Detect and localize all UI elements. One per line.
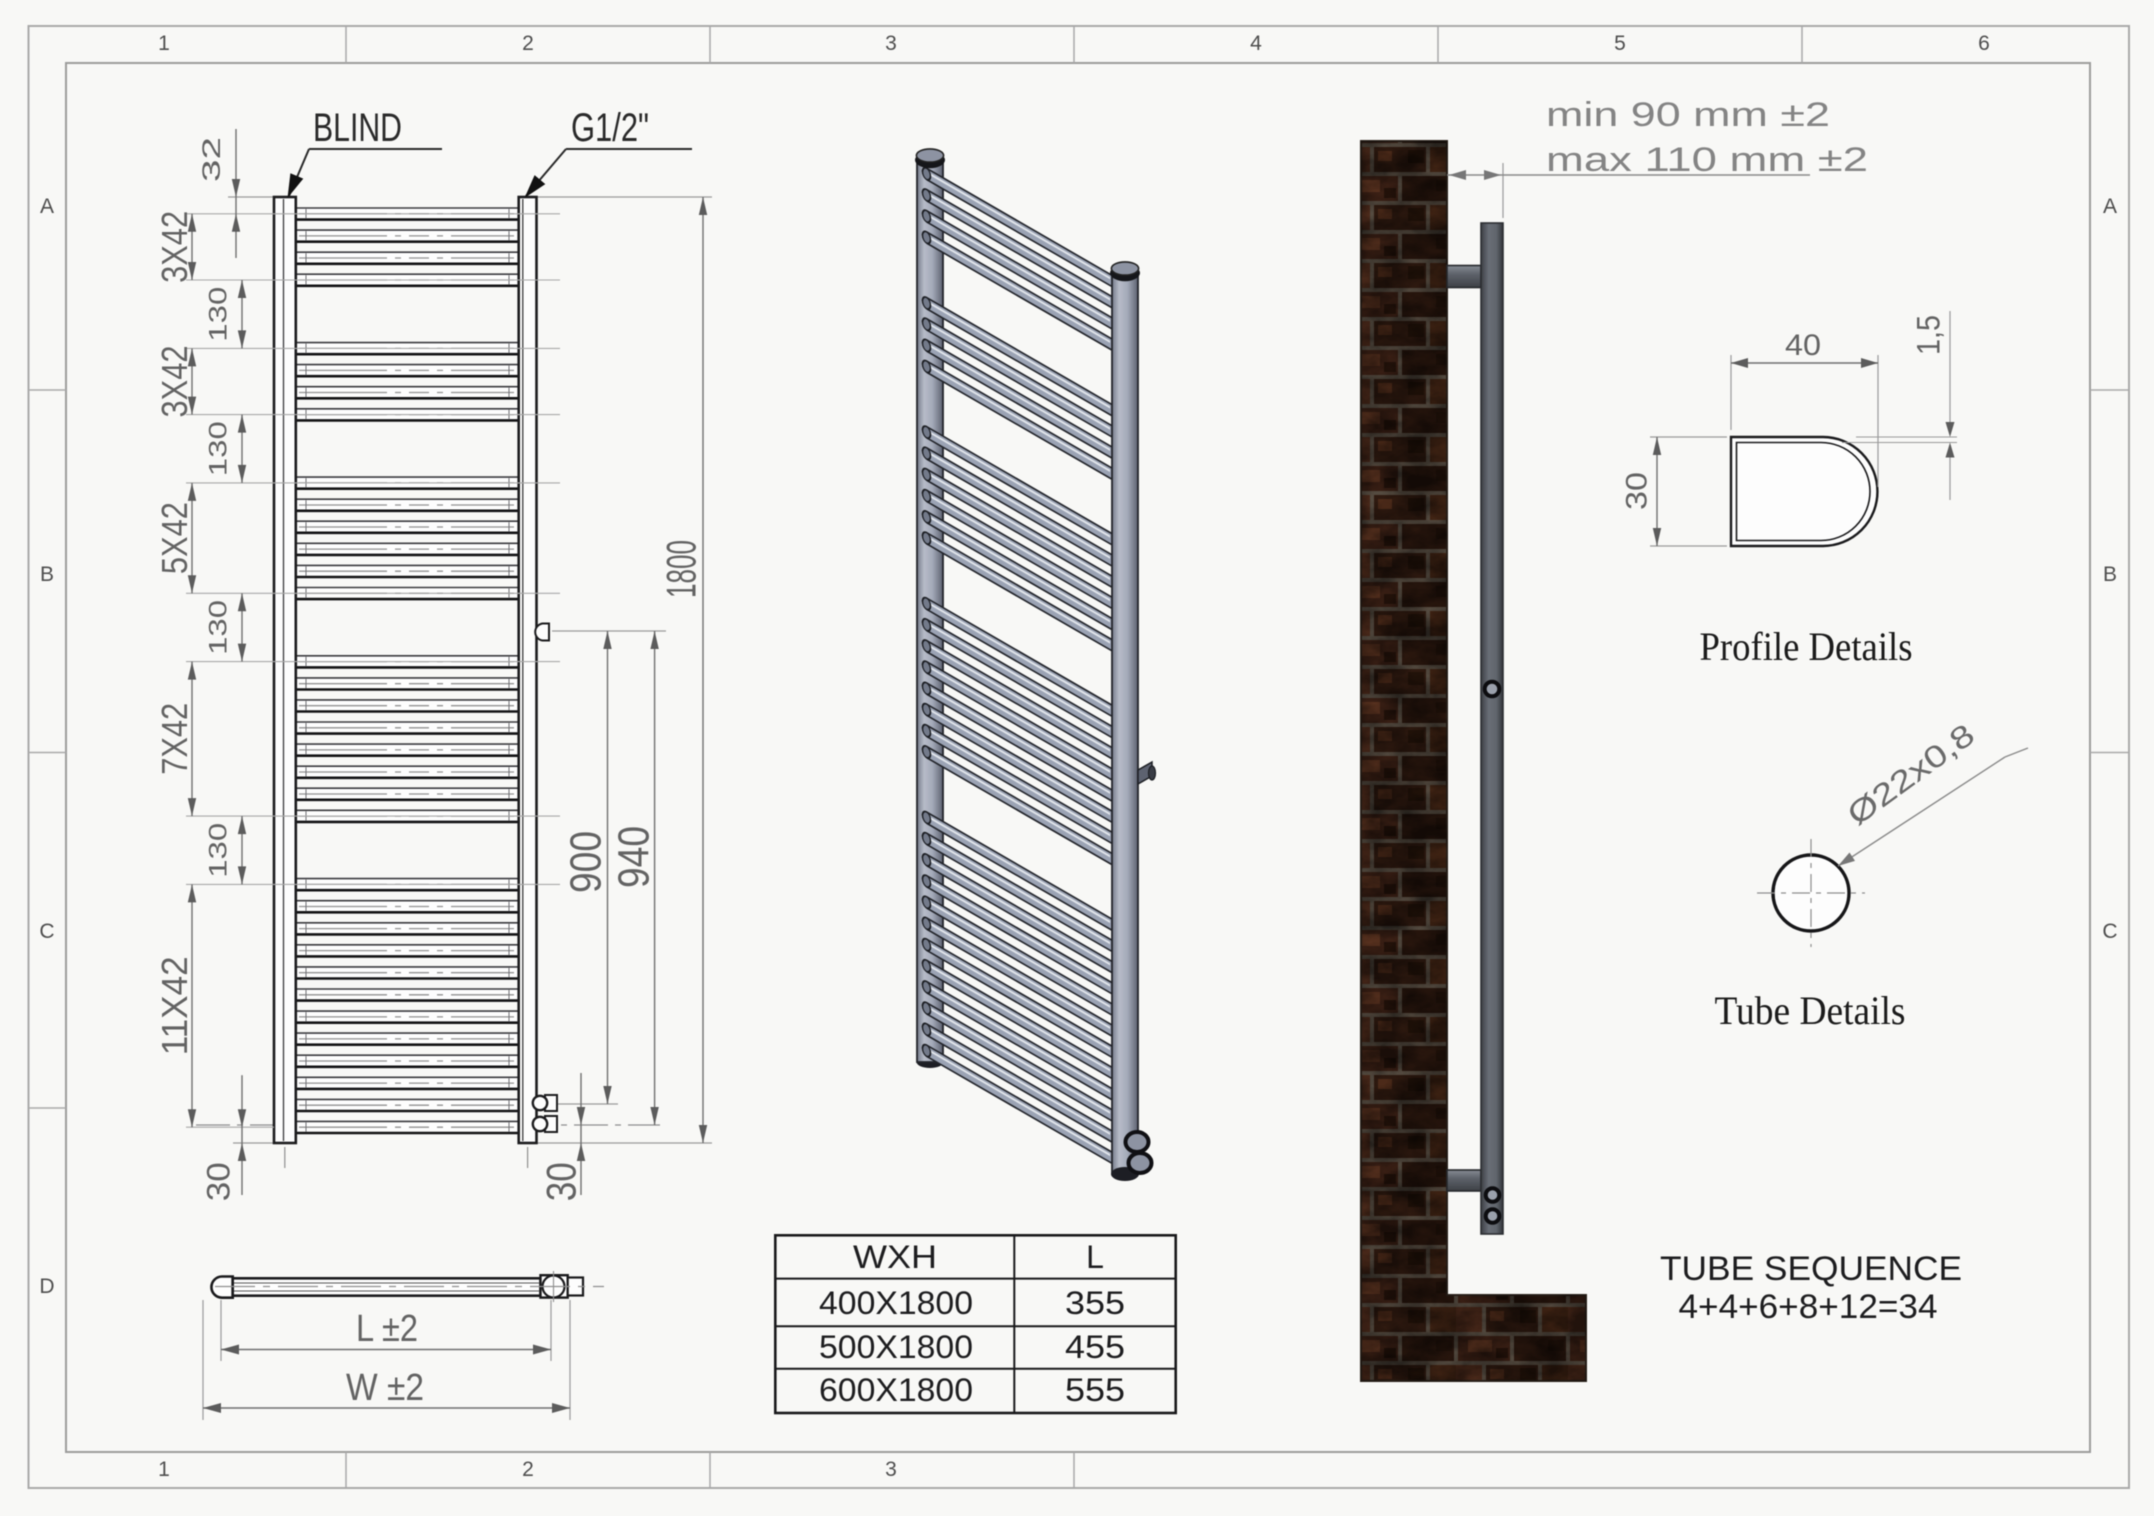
svg-text:400X1800: 400X1800	[819, 1285, 973, 1321]
svg-text:6: 6	[1978, 32, 1990, 55]
svg-text:W ±2: W ±2	[346, 1367, 424, 1409]
svg-text:900: 900	[562, 831, 611, 893]
svg-text:130: 130	[205, 287, 233, 342]
svg-text:B: B	[40, 563, 54, 586]
svg-text:40: 40	[1785, 329, 1821, 362]
svg-text:130: 130	[205, 600, 233, 655]
svg-text:2: 2	[522, 32, 534, 55]
svg-text:355: 355	[1065, 1285, 1125, 1321]
svg-text:555: 555	[1065, 1372, 1125, 1408]
svg-text:11X42: 11X42	[154, 956, 195, 1055]
svg-text:C: C	[39, 920, 54, 943]
svg-text:A: A	[40, 195, 54, 218]
svg-text:130: 130	[205, 823, 233, 878]
svg-text:30: 30	[538, 1162, 585, 1201]
svg-text:B: B	[2103, 563, 2117, 586]
svg-text:2: 2	[522, 1458, 534, 1481]
svg-text:30: 30	[201, 1162, 237, 1201]
svg-text:130: 130	[205, 421, 233, 476]
svg-text:1: 1	[158, 32, 170, 55]
svg-text:5X42: 5X42	[154, 502, 195, 574]
svg-text:1800: 1800	[658, 540, 705, 598]
svg-text:3X42: 3X42	[154, 211, 195, 283]
svg-text:L ±2: L ±2	[356, 1308, 418, 1350]
svg-text:940: 940	[610, 826, 659, 888]
svg-text:4: 4	[1250, 32, 1262, 55]
svg-text:1,5: 1,5	[1911, 315, 1947, 355]
svg-text:G1/2": G1/2"	[571, 106, 649, 150]
svg-text:BLIND: BLIND	[313, 106, 402, 150]
svg-text:3: 3	[885, 32, 897, 55]
svg-text:32: 32	[198, 137, 226, 182]
svg-text:TUBE SEQUENCE: TUBE SEQUENCE	[1660, 1250, 1962, 1288]
svg-text:3X42: 3X42	[154, 346, 195, 418]
svg-text:1: 1	[158, 1458, 170, 1481]
svg-text:4+4+6+8+12=34: 4+4+6+8+12=34	[1679, 1288, 1938, 1326]
svg-text:7X42: 7X42	[154, 703, 195, 775]
svg-text:30: 30	[1621, 472, 1654, 510]
svg-text:max 110 mm ±2: max 110 mm ±2	[1546, 141, 1868, 179]
svg-text:3: 3	[885, 1458, 897, 1481]
svg-text:500X1800: 500X1800	[819, 1329, 973, 1365]
svg-text:min 90 mm ±2: min 90 mm ±2	[1546, 96, 1830, 134]
svg-text:Profile Details: Profile Details	[1700, 624, 1913, 669]
svg-text:Tube Details: Tube Details	[1715, 988, 1906, 1033]
svg-text:5: 5	[1614, 32, 1626, 55]
svg-text:D: D	[39, 1275, 54, 1298]
svg-text:L: L	[1086, 1239, 1104, 1275]
svg-text:455: 455	[1065, 1329, 1125, 1365]
svg-text:WXH: WXH	[853, 1239, 937, 1275]
svg-text:C: C	[2102, 920, 2117, 943]
svg-text:600X1800: 600X1800	[819, 1372, 973, 1408]
svg-text:A: A	[2103, 195, 2117, 218]
